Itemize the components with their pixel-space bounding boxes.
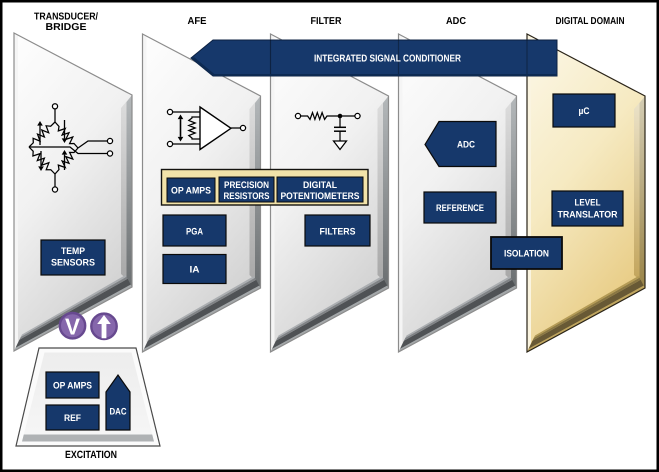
- svg-text:ISOLATION: ISOLATION: [504, 249, 549, 260]
- svg-text:LEVEL: LEVEL: [575, 198, 601, 209]
- svg-text:DAC: DAC: [110, 407, 127, 418]
- svg-text:EXCITATION: EXCITATION: [65, 449, 117, 461]
- svg-text:TRANSDUCER/: TRANSDUCER/: [34, 12, 98, 23]
- svg-text:V: V: [65, 314, 81, 340]
- svg-text:RESISTORS: RESISTORS: [224, 191, 270, 202]
- svg-text:REFERENCE: REFERENCE: [436, 203, 484, 214]
- svg-text:OP AMPS: OP AMPS: [53, 381, 92, 392]
- svg-text:ADC: ADC: [457, 140, 475, 151]
- svg-text:TEMP: TEMP: [61, 246, 86, 257]
- svg-text:INTEGRATED SIGNAL CONDITIONER: INTEGRATED SIGNAL CONDITIONER: [314, 54, 462, 65]
- svg-text:ADC: ADC: [446, 16, 466, 27]
- svg-text:PGA: PGA: [186, 227, 203, 238]
- svg-text:DIGITAL: DIGITAL: [303, 180, 337, 191]
- svg-text:REF: REF: [64, 413, 81, 424]
- svg-text:POTENTIOMETERS: POTENTIOMETERS: [281, 191, 360, 202]
- svg-text:FILTERS: FILTERS: [320, 227, 356, 238]
- svg-text:SENSORS: SENSORS: [51, 258, 95, 269]
- svg-text:TRANSLATOR: TRANSLATOR: [558, 210, 618, 221]
- svg-text:AFE: AFE: [188, 16, 207, 27]
- svg-text:DIGITAL DOMAIN: DIGITAL DOMAIN: [556, 16, 625, 27]
- svg-text:PRECISION: PRECISION: [224, 180, 269, 191]
- svg-text:IA: IA: [190, 265, 200, 276]
- svg-text:OP AMPS: OP AMPS: [171, 186, 211, 197]
- svg-text:µC: µC: [579, 106, 590, 117]
- svg-text:BRIDGE: BRIDGE: [46, 22, 87, 33]
- svg-text:FILTER: FILTER: [311, 16, 343, 27]
